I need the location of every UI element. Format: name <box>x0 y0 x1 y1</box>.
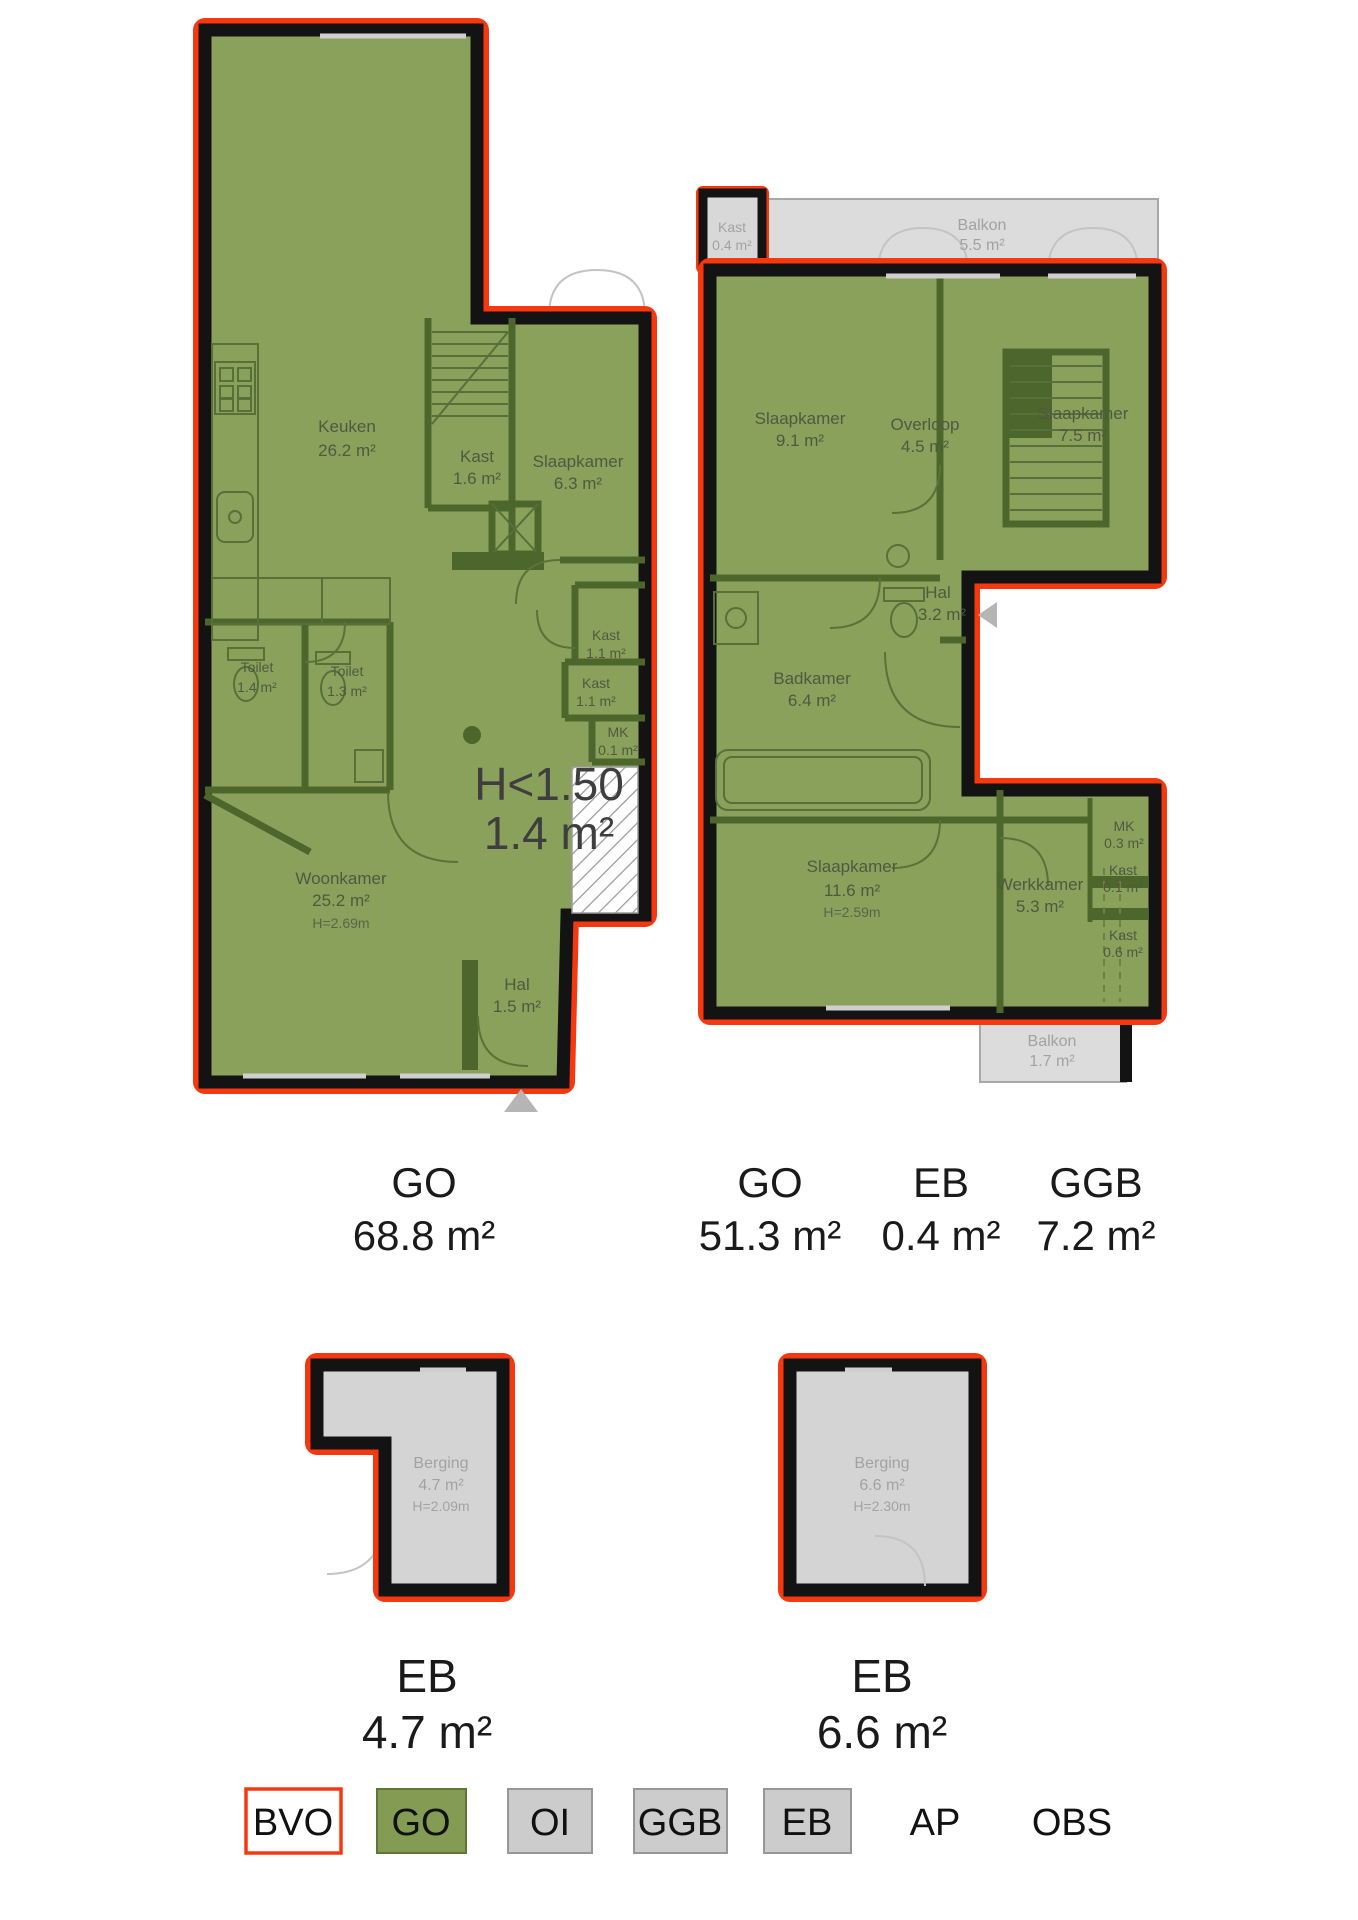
room-label-toilet-b: Toilet <box>331 663 364 679</box>
room-area-kast-trap: 1.6 m² <box>453 469 502 488</box>
room-area-kast-c: 0.1 m² <box>1103 879 1143 895</box>
area-value-floor2-ggb: 7.2 m² <box>1036 1212 1155 1259</box>
room-label-balkon-voor: Balkon <box>958 217 1007 234</box>
floorplan-first-floor: Keuken 26.2 m² Kast 1.6 m² Slaapkamer 6.… <box>205 30 645 1112</box>
room-area-kast-a: 1.1 m² <box>586 645 626 661</box>
room-area-hal: 1.5 m² <box>493 997 542 1016</box>
room-area-toilet-b: 1.3 m² <box>327 683 367 699</box>
room-label-slaapkamer-2: Slaapkamer <box>1038 404 1129 423</box>
room-area-woonkamer: 25.2 m² <box>312 891 370 910</box>
room-label-hal2: Hal <box>925 583 951 602</box>
legend-label-ap: AP <box>910 1802 961 1844</box>
room-height-slaapkamer-3: H=2.59m <box>823 904 880 920</box>
room-area-slaapkamer-2: 7.5 m² <box>1059 426 1108 445</box>
room-label-slaapkamer-3: Slaapkamer <box>807 857 898 876</box>
room-label-woonkamer: Woonkamer <box>295 869 387 888</box>
storage-plan-2: Berging 6.6 m² H=2.30m <box>790 1365 975 1590</box>
low-height-area: 1.4 m² <box>484 807 614 859</box>
storage-plan-1: Berging 4.7 m² H=2.09m <box>317 1365 503 1590</box>
room-area-slaapkamer-3: 11.6 m² <box>824 881 881 900</box>
room-label-badkamer: Badkamer <box>773 669 851 688</box>
room-area-berging1: 4.7 m² <box>418 1477 464 1494</box>
area-value-floor2-go: 51.3 m² <box>699 1212 841 1259</box>
floorplan-second-floor: Kast 0.4 m² Balkon 5.5 m² Slaapkamer 9.1… <box>703 193 1158 1082</box>
room-label-slaapkamer-1: Slaapkamer <box>755 409 846 428</box>
area-value-storage2-eb: 6.6 m² <box>817 1706 947 1758</box>
room-area-slaapkamer-1: 9.1 m² <box>776 431 825 450</box>
room-area-mk2: 0.3 m² <box>1104 835 1144 851</box>
area-code-floor2-ggb: GGB <box>1049 1159 1142 1206</box>
area-code-storage1-eb: EB <box>396 1650 457 1702</box>
room-label-mk: MK <box>608 724 630 740</box>
room-label-kast-b: Kast <box>582 675 610 691</box>
room-area-kast-d: 0.6 m² <box>1103 944 1143 960</box>
legend-label-go: GO <box>391 1802 450 1844</box>
room-label-overloop: Overloop <box>891 415 960 434</box>
room-label-keuken: Keuken <box>318 417 376 436</box>
room-label-slaapkamer: Slaapkamer <box>533 452 624 471</box>
room-area-overloop: 4.5 m² <box>901 437 950 456</box>
room-area-kast-buiten: 0.4 m² <box>712 237 752 253</box>
interior-wall <box>462 960 478 1070</box>
room-height-berging1: H=2.09m <box>412 1498 469 1514</box>
room-area-hal2: 3.2 m² <box>918 605 967 624</box>
room-label-kast-d: Kast <box>1109 927 1137 943</box>
area-code-floor2-eb: EB <box>913 1159 969 1206</box>
room-area-balkon-voor: 5.5 m² <box>959 237 1005 254</box>
legend: BVO GO OI GGB EB AP OBS <box>246 1789 1112 1853</box>
area-value-storage1-eb: 4.7 m² <box>362 1706 492 1758</box>
room-label-kast-trap: Kast <box>460 447 494 466</box>
room-height-woonkamer: H=2.69m <box>312 915 369 931</box>
room-label-mk2: MK <box>1114 818 1136 834</box>
room-label-berging1: Berging <box>413 1455 468 1472</box>
room-area-toilet-a: 1.4 m² <box>237 679 277 695</box>
room-label-berging2: Berging <box>854 1455 909 1472</box>
area-code-floor1-go: GO <box>391 1159 456 1206</box>
room-label-kast-a: Kast <box>592 627 620 643</box>
room-area-mk: 0.1 m² <box>598 742 638 758</box>
room-label-toilet-a: Toilet <box>241 659 274 675</box>
legend-label-oi: OI <box>530 1802 570 1844</box>
room-area-werkkamer: 5.3 m² <box>1016 897 1065 916</box>
room-area-keuken: 26.2 m² <box>318 441 376 460</box>
room-area-slaapkamer: 6.3 m² <box>554 474 603 493</box>
room-area-badkamer: 6.4 m² <box>788 691 837 710</box>
column-dot <box>463 726 481 744</box>
room-label-kast-buiten: Kast <box>718 219 746 235</box>
entrance-arrow-icon <box>978 602 997 628</box>
room-area-balkon-achter: 1.7 m² <box>1029 1053 1075 1070</box>
legend-label-bvo: BVO <box>253 1802 333 1844</box>
room-area-berging2: 6.6 m² <box>859 1477 905 1494</box>
low-height-label: H<1.50 <box>474 758 624 810</box>
legend-label-ggb: GGB <box>638 1802 722 1844</box>
floorplan-page: Keuken 26.2 m² Kast 1.6 m² Slaapkamer 6.… <box>0 0 1358 1920</box>
area-value-floor1-go: 68.8 m² <box>353 1212 495 1259</box>
area-code-floor2-go: GO <box>737 1159 802 1206</box>
exterior-wall-storage1 <box>317 1365 503 1590</box>
floorplan-canvas: Keuken 26.2 m² Kast 1.6 m² Slaapkamer 6.… <box>0 0 1358 1920</box>
legend-label-obs: OBS <box>1032 1802 1112 1844</box>
room-label-werkkamer: Werkkamer <box>997 875 1084 894</box>
room-label-hal: Hal <box>504 975 530 994</box>
legend-label-eb: EB <box>782 1802 833 1844</box>
room-height-berging2: H=2.30m <box>853 1498 910 1514</box>
area-value-floor2-eb: 0.4 m² <box>881 1212 1000 1259</box>
room-area-kast-b: 1.1 m² <box>576 693 616 709</box>
area-code-storage2-eb: EB <box>851 1650 912 1702</box>
room-label-balkon-achter: Balkon <box>1028 1033 1077 1050</box>
room-label-kast-c: Kast <box>1109 862 1137 878</box>
